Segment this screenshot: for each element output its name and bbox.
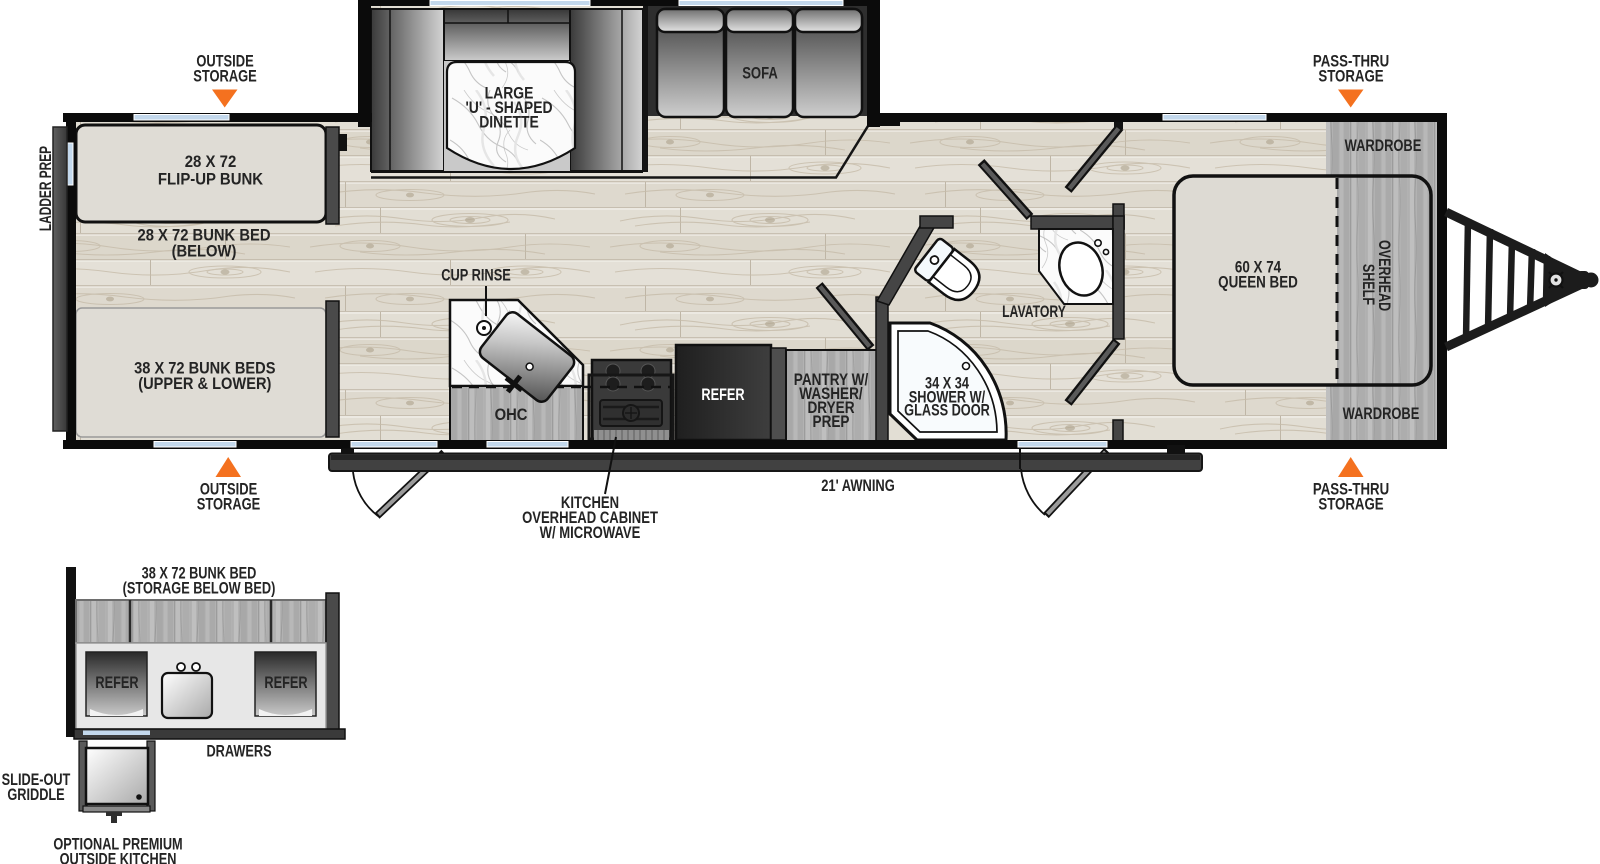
svg-text:LADDER PREP: LADDER PREP (37, 146, 56, 231)
svg-text:REFER: REFER (264, 673, 307, 692)
svg-text:DRAWERS: DRAWERS (206, 742, 271, 761)
svg-text:PREP: PREP (813, 413, 850, 432)
svg-text:SOFA: SOFA (742, 64, 778, 83)
svg-text:REFER: REFER (701, 385, 744, 404)
svg-text:(STORAGE BELOW BED): (STORAGE BELOW BED) (123, 579, 276, 598)
svg-text:REFER: REFER (95, 673, 138, 692)
svg-text:GLASS DOOR: GLASS DOOR (904, 401, 990, 420)
svg-text:(BELOW): (BELOW) (172, 243, 237, 261)
svg-text:FLIP-UP BUNK: FLIP-UP BUNK (158, 171, 264, 189)
svg-text:SHELF: SHELF (1358, 264, 1377, 305)
svg-text:STORAGE: STORAGE (1318, 67, 1383, 86)
svg-text:CUP RINSE: CUP RINSE (441, 266, 511, 285)
svg-text:STORAGE: STORAGE (1318, 495, 1383, 514)
svg-text:OHC: OHC (495, 406, 528, 424)
svg-text:WARDROBE: WARDROBE (1345, 136, 1422, 155)
svg-text:21' AWNING: 21' AWNING (821, 476, 895, 495)
svg-text:DINETTE: DINETTE (479, 113, 539, 132)
svg-text:W/ MICROWAVE: W/ MICROWAVE (540, 523, 641, 542)
svg-text:WARDROBE: WARDROBE (1343, 404, 1420, 423)
svg-text:QUEEN BED: QUEEN BED (1218, 273, 1298, 292)
svg-text:GRIDDLE: GRIDDLE (7, 785, 64, 804)
svg-text:LAVATORY: LAVATORY (1002, 303, 1066, 321)
svg-text:(UPPER & LOWER): (UPPER & LOWER) (138, 375, 271, 393)
svg-text:OUTSIDE KITCHEN: OUTSIDE KITCHEN (60, 850, 177, 864)
svg-text:28 X 72: 28 X 72 (185, 153, 237, 171)
svg-text:STORAGE: STORAGE (193, 67, 257, 86)
svg-text:STORAGE: STORAGE (197, 495, 261, 514)
